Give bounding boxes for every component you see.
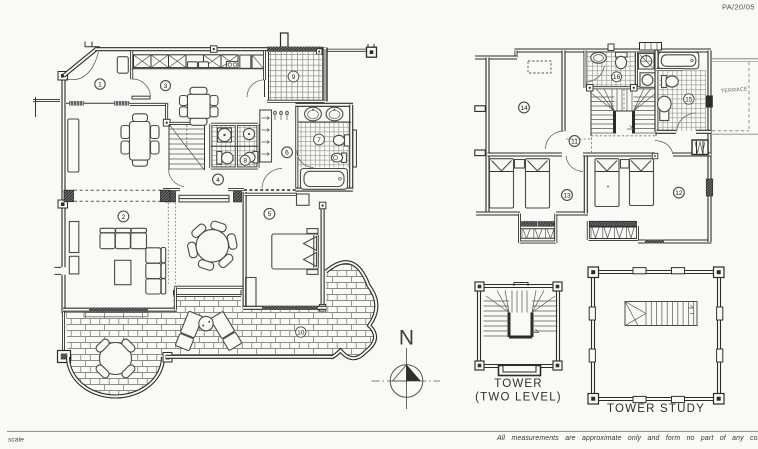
svg-text:12: 12	[675, 190, 683, 197]
svg-text:TOWER STUDY: TOWER STUDY	[607, 403, 705, 415]
svg-text:All measurements are approxima: All measurements are approximate only an…	[496, 435, 758, 442]
svg-text:1: 1	[98, 81, 102, 88]
svg-text:16: 16	[613, 74, 621, 81]
svg-text:PA/20/05: PA/20/05	[722, 3, 755, 12]
svg-text:8: 8	[243, 158, 247, 165]
svg-text:4: 4	[216, 177, 220, 184]
svg-text:14: 14	[520, 105, 528, 112]
svg-text:N: N	[399, 327, 414, 350]
svg-text:3: 3	[164, 83, 168, 90]
svg-text:5: 5	[268, 211, 272, 218]
svg-text:scale: scale	[8, 437, 24, 444]
svg-text:2: 2	[122, 214, 126, 221]
svg-text:9: 9	[292, 74, 296, 81]
svg-text:13: 13	[563, 192, 571, 199]
svg-text:7: 7	[317, 137, 321, 144]
svg-text:11: 11	[571, 138, 578, 145]
svg-text:TOWER: TOWER	[494, 378, 543, 390]
svg-text:6: 6	[285, 150, 289, 157]
svg-text:10: 10	[297, 329, 305, 336]
svg-text:15: 15	[685, 96, 693, 103]
svg-text:(TWO LEVEL): (TWO LEVEL)	[475, 392, 562, 404]
